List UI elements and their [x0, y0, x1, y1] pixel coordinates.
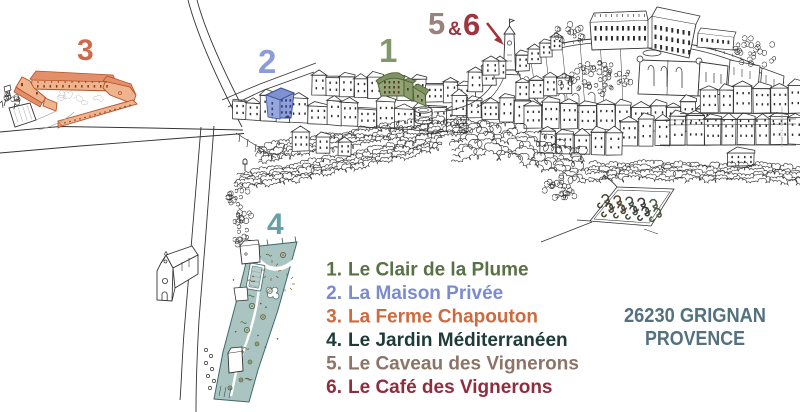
svg-text:4.: 4. — [326, 330, 342, 351]
svg-text:Le Café des Vignerons: Le Café des Vignerons — [348, 377, 553, 398]
svg-text:6.: 6. — [326, 377, 342, 398]
svg-text:6: 6 — [463, 7, 480, 42]
svg-text:La Maison Privée: La Maison Privée — [348, 283, 503, 304]
svg-text:2: 2 — [258, 43, 276, 80]
svg-text:Le Clair de la Plume: Le Clair de la Plume — [348, 260, 529, 281]
svg-text:26230 GRIGNAN: 26230 GRIGNAN — [624, 305, 766, 327]
svg-text:Le Caveau des Vignerons: Le Caveau des Vignerons — [348, 354, 579, 375]
svg-text:Le Jardin Méditerranéen: Le Jardin Méditerranéen — [348, 330, 568, 351]
svg-text:1.: 1. — [326, 260, 342, 281]
svg-text:dessin J.C. Vincendon: dessin J.C. Vincendon — [779, 107, 784, 147]
svg-text:5.: 5. — [326, 354, 342, 375]
svg-text:&: & — [448, 19, 462, 40]
svg-text:PROVENCE: PROVENCE — [645, 328, 745, 350]
svg-text:3.: 3. — [326, 307, 342, 328]
svg-text:4: 4 — [267, 208, 284, 241]
svg-text:La Ferme Chapouton: La Ferme Chapouton — [348, 307, 538, 328]
svg-text:2.: 2. — [326, 283, 342, 304]
svg-text:1: 1 — [379, 32, 397, 69]
svg-text:3: 3 — [77, 34, 94, 67]
svg-text:5: 5 — [428, 6, 445, 41]
